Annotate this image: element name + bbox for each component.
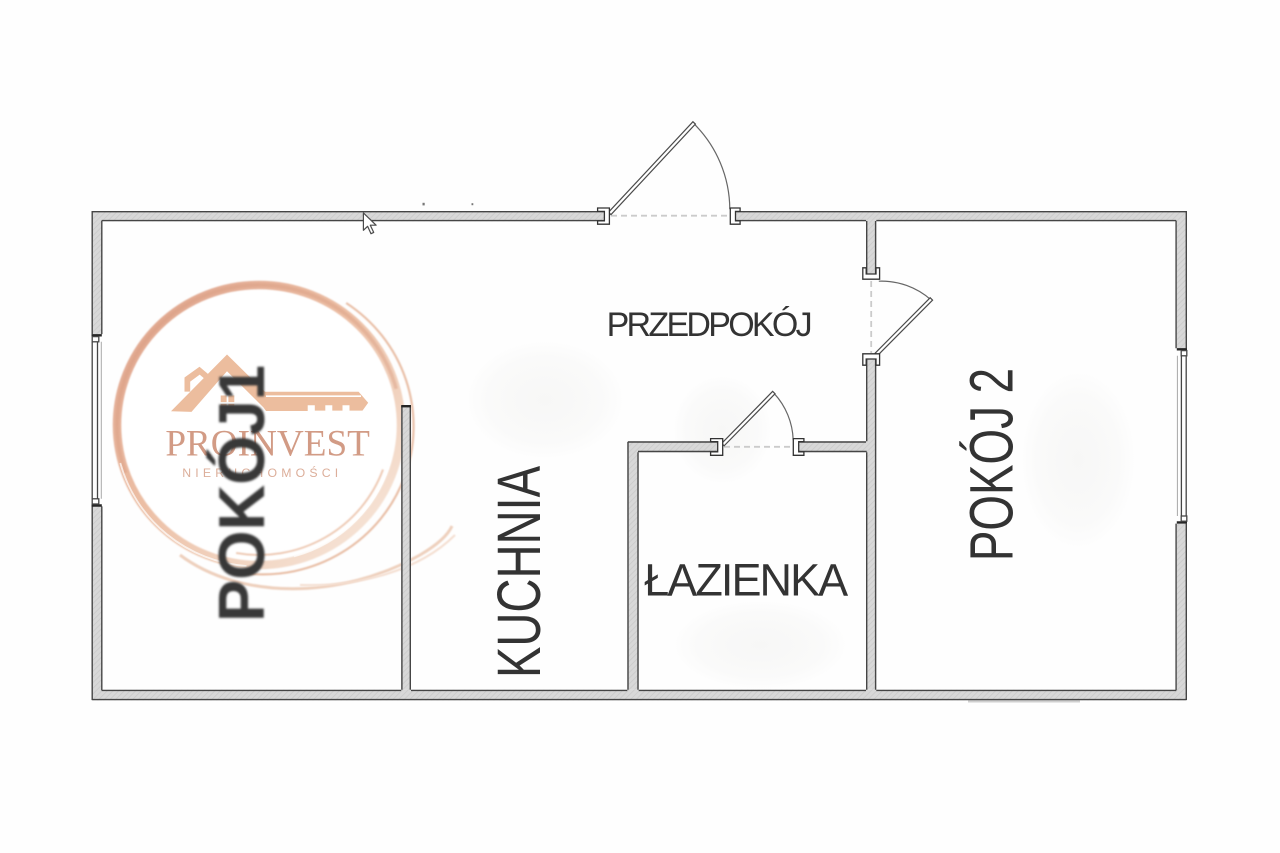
svg-text:POKÓJ 2: POKÓJ 2 xyxy=(958,368,1026,561)
svg-text:ŁAZIENKA: ŁAZIENKA xyxy=(644,554,848,605)
svg-text:PRZEDPOKÓJ: PRZEDPOKÓJ xyxy=(607,306,813,344)
svg-text:KUCHNIA: KUCHNIA xyxy=(484,466,554,678)
svg-text:POKÓJ1: POKÓJ1 xyxy=(205,365,278,622)
